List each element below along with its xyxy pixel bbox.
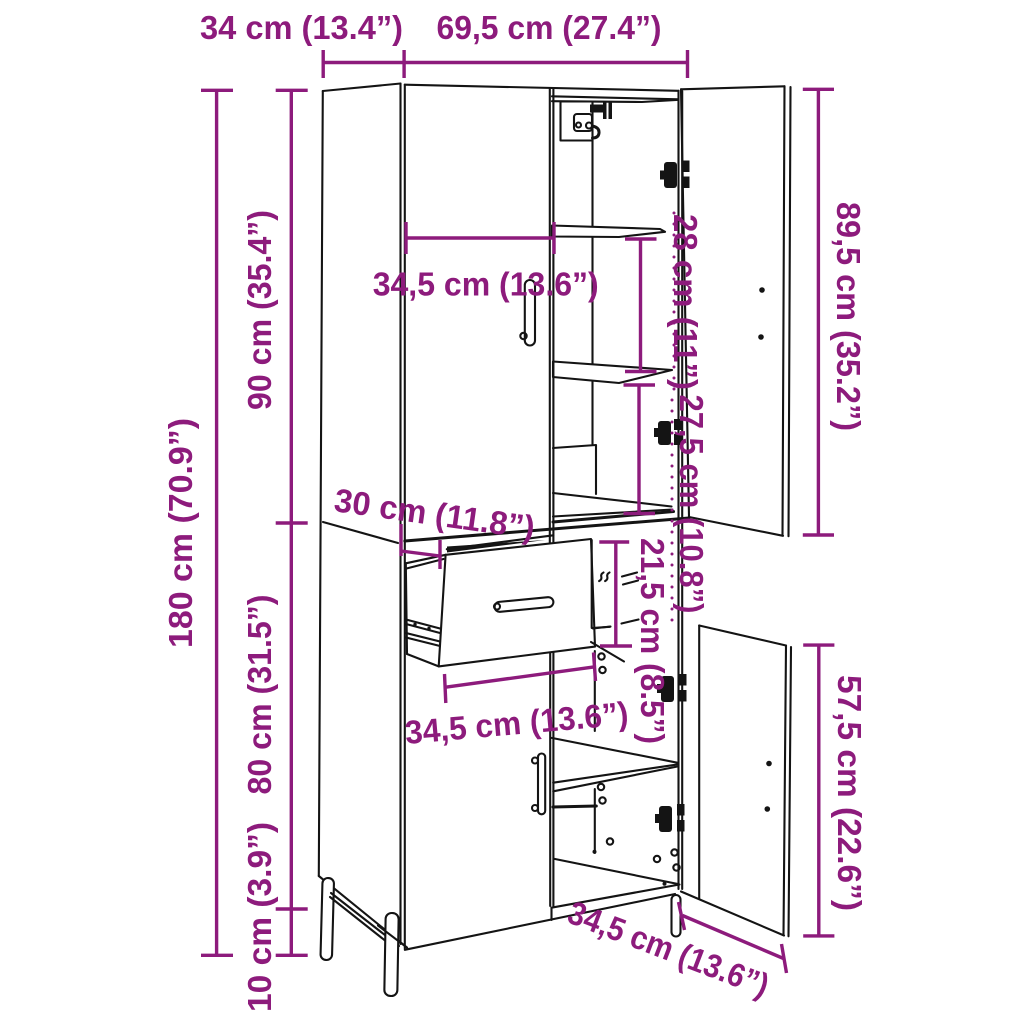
svg-text:89,5 cm (35.2”): 89,5 cm (35.2”): [830, 202, 867, 431]
svg-text:28 cm (11”): 28 cm (11”): [667, 214, 704, 390]
svg-text:27,5 cm (10.8”): 27,5 cm (10.8”): [673, 395, 710, 614]
svg-text:57,5 cm (22.6”): 57,5 cm (22.6”): [831, 675, 868, 911]
svg-text:21,5 cm (8.5”): 21,5 cm (8.5”): [634, 538, 671, 744]
svg-text:34,5 cm (13.6”): 34,5 cm (13.6”): [373, 266, 599, 303]
svg-text:34 cm (13.4”): 34 cm (13.4”): [200, 9, 403, 46]
svg-text:69,5 cm (27.4”): 69,5 cm (27.4”): [437, 9, 662, 46]
svg-text:80 cm (31.5”): 80 cm (31.5”): [241, 595, 278, 795]
svg-text:180 cm (70.9”): 180 cm (70.9”): [162, 418, 199, 648]
svg-text:90 cm (35.4”): 90 cm (35.4”): [241, 210, 278, 410]
svg-text:10 cm (3.9”): 10 cm (3.9”): [241, 822, 278, 1012]
